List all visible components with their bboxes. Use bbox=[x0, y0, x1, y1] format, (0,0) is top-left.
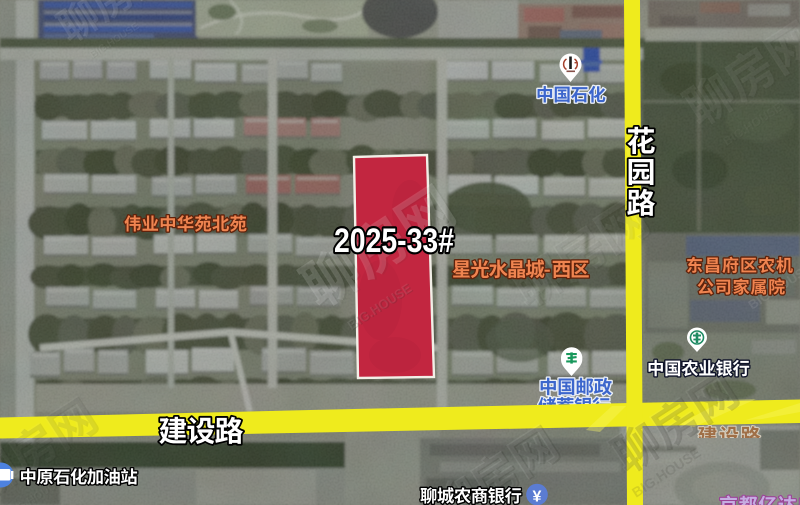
svg-text:2025-33#: 2025-33# bbox=[334, 222, 454, 260]
svg-text:¥: ¥ bbox=[533, 489, 542, 505]
